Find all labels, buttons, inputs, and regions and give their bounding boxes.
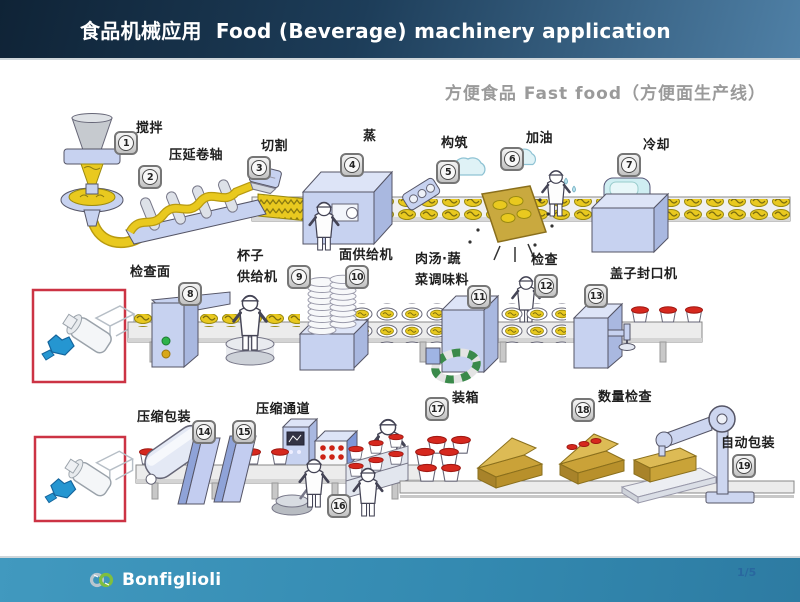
step-badge-16: 16: [327, 494, 351, 518]
footer-bar: Bonfiglioli: [0, 556, 800, 602]
slide: 食品机械应用Food (Beverage) machinery applicat…: [0, 0, 800, 600]
step-label-9: 杯子 供给机: [237, 247, 278, 289]
sweat-drops: [565, 178, 576, 192]
step-badge-14: 14: [192, 420, 216, 444]
step-label-6: 加油: [526, 129, 553, 150]
step-label-8: 检查面: [130, 263, 171, 284]
step-label-19: 自动包装: [721, 434, 775, 455]
gearmotor-inset-1: [33, 290, 134, 382]
brand-name: Bonfiglioli: [122, 570, 221, 590]
brand-logo: Bonfiglioli: [88, 570, 221, 590]
step-badge-8: 8: [178, 282, 202, 306]
step-badge-6: 6: [500, 147, 524, 171]
step-label-14: 压缩包装: [137, 408, 191, 429]
cooler-machine: [592, 178, 668, 252]
step-label-18: 数量检查: [598, 388, 652, 409]
step-badge-12: 12: [534, 274, 558, 298]
step-badge-9: 9: [287, 265, 311, 289]
step-badge-19: 19: [732, 454, 756, 478]
step-label-13: 盖子封口机: [610, 265, 678, 286]
step-badge-17: 17: [425, 397, 449, 421]
cup-stacks: [416, 436, 471, 481]
step-badge-5: 5: [436, 160, 460, 184]
step-label-5: 构筑: [441, 134, 468, 155]
step-badge-7: 7: [617, 153, 641, 177]
step-label-2: 压延卷轴: [169, 146, 223, 167]
step-label-11: 肉汤·蔬 菜调味料: [415, 250, 469, 292]
step-label-3: 切割: [261, 137, 288, 158]
noodle-supply-machine: [300, 275, 368, 370]
cup-supplier-station: [226, 337, 274, 365]
step-label-15: 压缩通道: [256, 400, 310, 421]
step-badge-10: 10: [345, 265, 369, 289]
step-badge-11: 11: [467, 285, 491, 309]
sealed-cup: [632, 307, 649, 322]
step-badge-1: 1: [114, 131, 138, 155]
sealed-cup: [660, 307, 677, 322]
cup: [272, 449, 289, 464]
step-label-4: 蒸: [363, 127, 377, 148]
sealed-cup: [686, 307, 703, 322]
slide-subtitle: 方便食品 Fast food（方便面生产线）: [445, 79, 766, 104]
bonfiglioli-logo-icon: [88, 570, 116, 590]
page-number: 1/5: [737, 566, 756, 579]
step-badge-3: 3: [247, 156, 271, 180]
step-badge-18: 18: [571, 398, 595, 422]
gearmotor-inset-2: [35, 437, 133, 521]
step-label-1: 搅拌: [136, 119, 163, 140]
step-label-7: 冷却: [643, 136, 670, 157]
step-label-10: 面供给机: [339, 246, 393, 267]
step-label-12: 检查: [531, 251, 558, 272]
step-badge-13: 13: [584, 284, 608, 308]
step-badge-4: 4: [340, 153, 364, 177]
step-badge-15: 15: [232, 420, 256, 444]
lid-sealer-machine: [574, 304, 635, 368]
step-badge-2: 2: [138, 165, 162, 189]
step-label-17: 装箱: [452, 389, 479, 410]
